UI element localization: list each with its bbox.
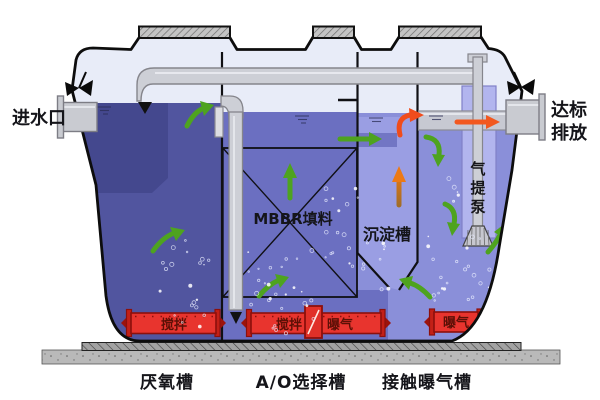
outlet-pipe xyxy=(506,94,545,140)
ao-selection-tank-label: A/O选择槽 xyxy=(256,372,347,393)
ao-aerator-label: 曝气 xyxy=(327,317,353,333)
ao-mixer-label: 搅拌 xyxy=(276,317,302,333)
contact-aerator-label: 曝气 xyxy=(443,315,469,331)
outlet-flange xyxy=(539,94,545,140)
lid-2 xyxy=(313,27,354,39)
divider-slot-plate xyxy=(215,107,223,137)
lid-1 xyxy=(139,27,230,39)
anaerobic-mixer: 搅拌 xyxy=(121,310,226,337)
lid-3 xyxy=(399,27,481,39)
anaerobic-mixer-label: 搅拌 xyxy=(161,317,187,333)
concrete-pad xyxy=(82,343,521,351)
concrete-slab xyxy=(42,350,560,364)
mbbr-label: MBBR填料 xyxy=(253,210,332,228)
svg-text:气: 气 xyxy=(469,160,485,178)
treatment-tank-diagram: 搅拌 搅拌 曝气 曝气 xyxy=(0,0,600,400)
settling-tank-label: 沉淀槽 xyxy=(363,225,411,244)
airlift-pump-label: 气 提 泵 xyxy=(469,160,486,216)
foundation xyxy=(42,343,560,365)
diagram-canvas: 搅拌 搅拌 曝气 曝气 xyxy=(0,0,600,400)
manhole-lids xyxy=(139,27,481,39)
svg-text:泵: 泵 xyxy=(470,198,485,216)
anaerobic-tank-label: 厌氧槽 xyxy=(140,372,194,393)
outlet-label: 达标 排放 xyxy=(551,99,588,144)
tank-zone-labels: 厌氧槽 A/O选择槽 接触曝气槽 xyxy=(140,372,472,393)
svg-text:达标: 达标 xyxy=(551,99,587,121)
contact-aeration-tank-label: 接触曝气槽 xyxy=(382,372,472,393)
inlet-label: 进水口 xyxy=(12,107,66,129)
svg-text:提: 提 xyxy=(470,179,486,197)
svg-text:排放: 排放 xyxy=(551,122,588,144)
tank-interior: 搅拌 搅拌 曝气 曝气 xyxy=(60,30,540,345)
